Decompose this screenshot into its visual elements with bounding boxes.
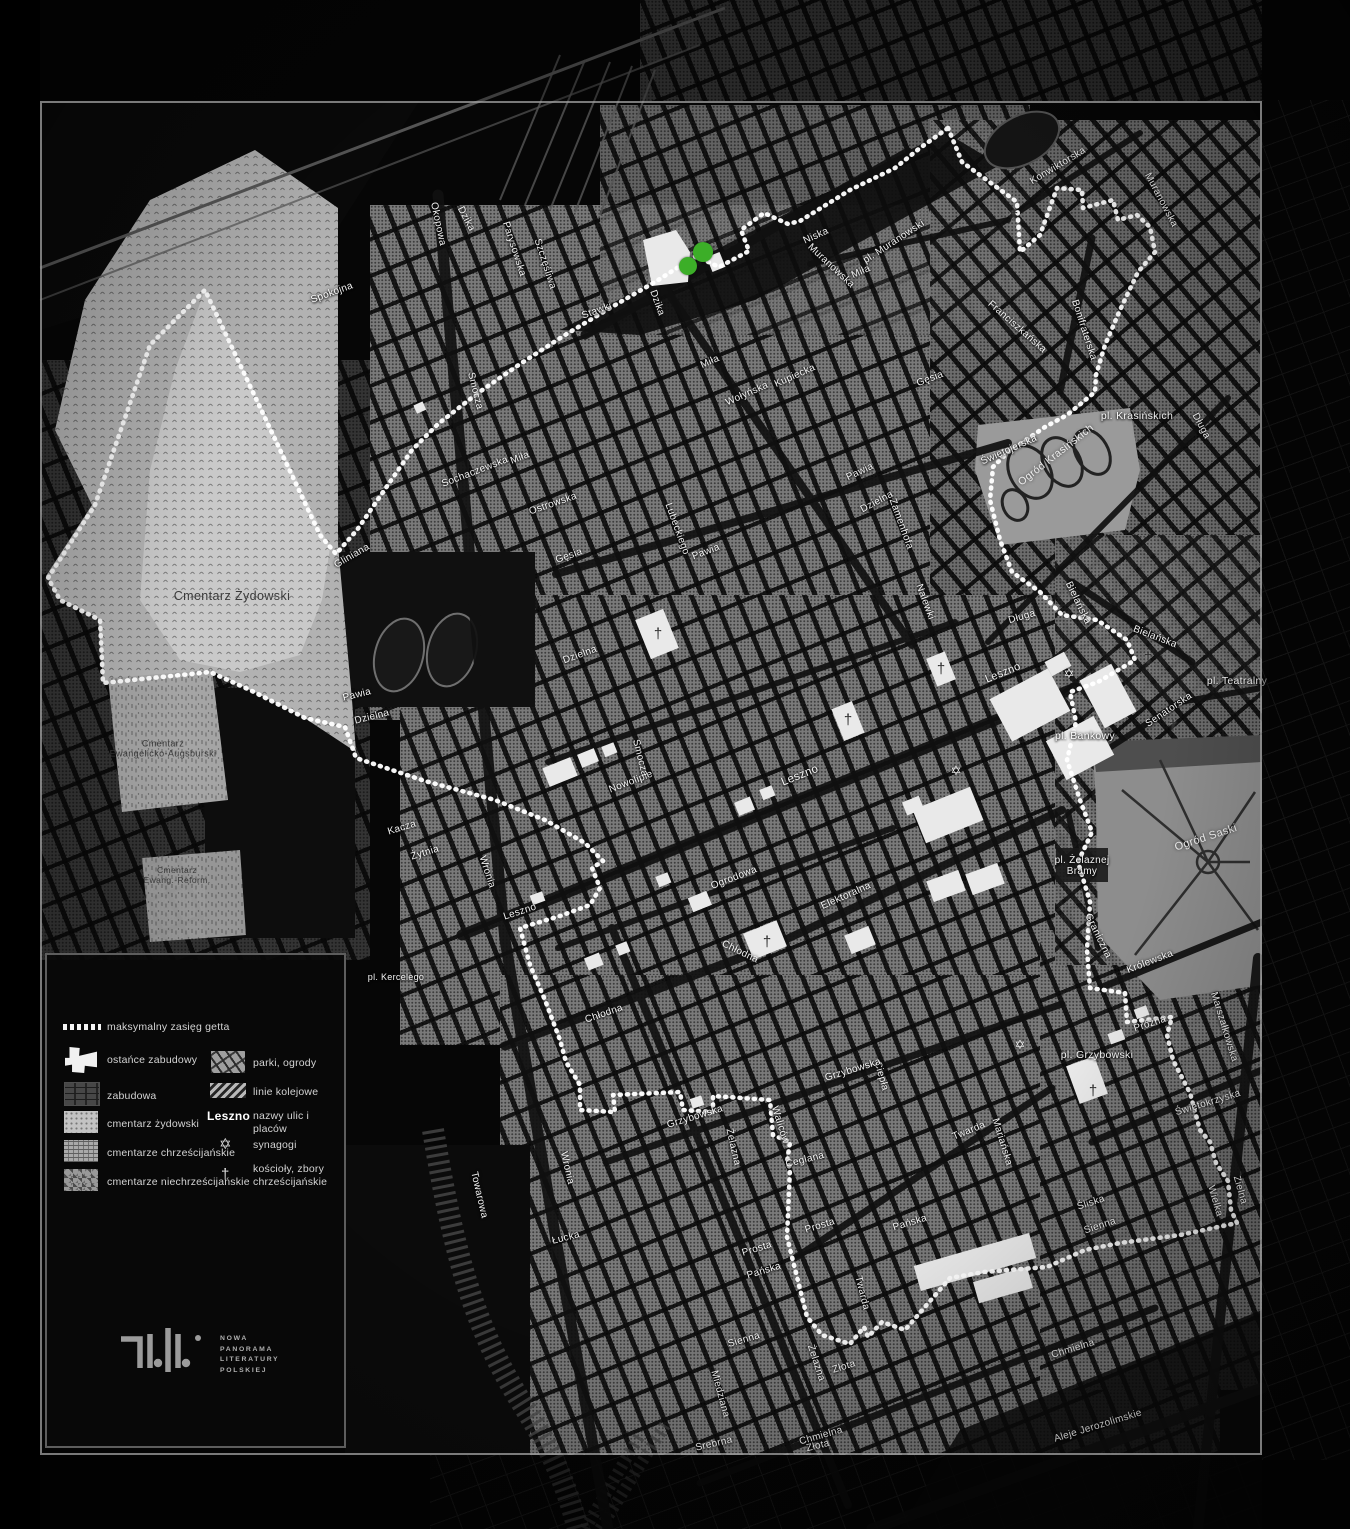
leg-rail-icon [210, 1083, 246, 1098]
leg-zabudowa-icon [64, 1082, 100, 1106]
nplp-logo-glyph [118, 1326, 214, 1374]
legend-item-label: synagogi [253, 1139, 297, 1152]
legend-item-label: zabudowa [107, 1090, 156, 1103]
green-marker-dot[interactable] [693, 242, 713, 262]
legend-item-label: parki, ogrody [253, 1057, 316, 1070]
nplp-logo: NOWA PANORAMA LITERATURY POLSKIEJ [118, 1326, 318, 1380]
legend-item-label: linie kolejowe [253, 1086, 318, 1099]
green-marker-dot[interactable] [679, 257, 697, 275]
legend-item-label: cmentarz żydowski [107, 1118, 199, 1131]
leg-ostance-icon [65, 1047, 97, 1073]
star-of-david-icon: ✡ [219, 1135, 232, 1153]
nplp-logo-text: NOWA PANORAMA LITERATURY POLSKIEJ [220, 1334, 279, 1376]
cross-icon: † [221, 1166, 229, 1183]
leg-park-icon [211, 1051, 245, 1073]
map-canvas[interactable]: SpokojnaOkopowaDzikaParysowskaSzczęśliwa… [0, 0, 1350, 1529]
legend-item-label: nazwy ulic i placów [253, 1110, 344, 1136]
leg-cmniechrz-icon [64, 1169, 98, 1191]
legend-item-label: ostańce zabudowy [107, 1054, 197, 1067]
leg-streetname-sample: Leszno [207, 1109, 250, 1123]
legend-item-label: maksymalny zasięg getta [107, 1021, 229, 1034]
leg-cmzyd-icon [64, 1111, 98, 1133]
legend-boundary-swatch [63, 1024, 101, 1030]
legend-item-label: cmentarze chrześcijańskie [107, 1147, 235, 1160]
leg-cmchrz-icon [64, 1140, 98, 1162]
legend-item-label: kościoły, zbory chrześcijańskie [253, 1163, 341, 1189]
